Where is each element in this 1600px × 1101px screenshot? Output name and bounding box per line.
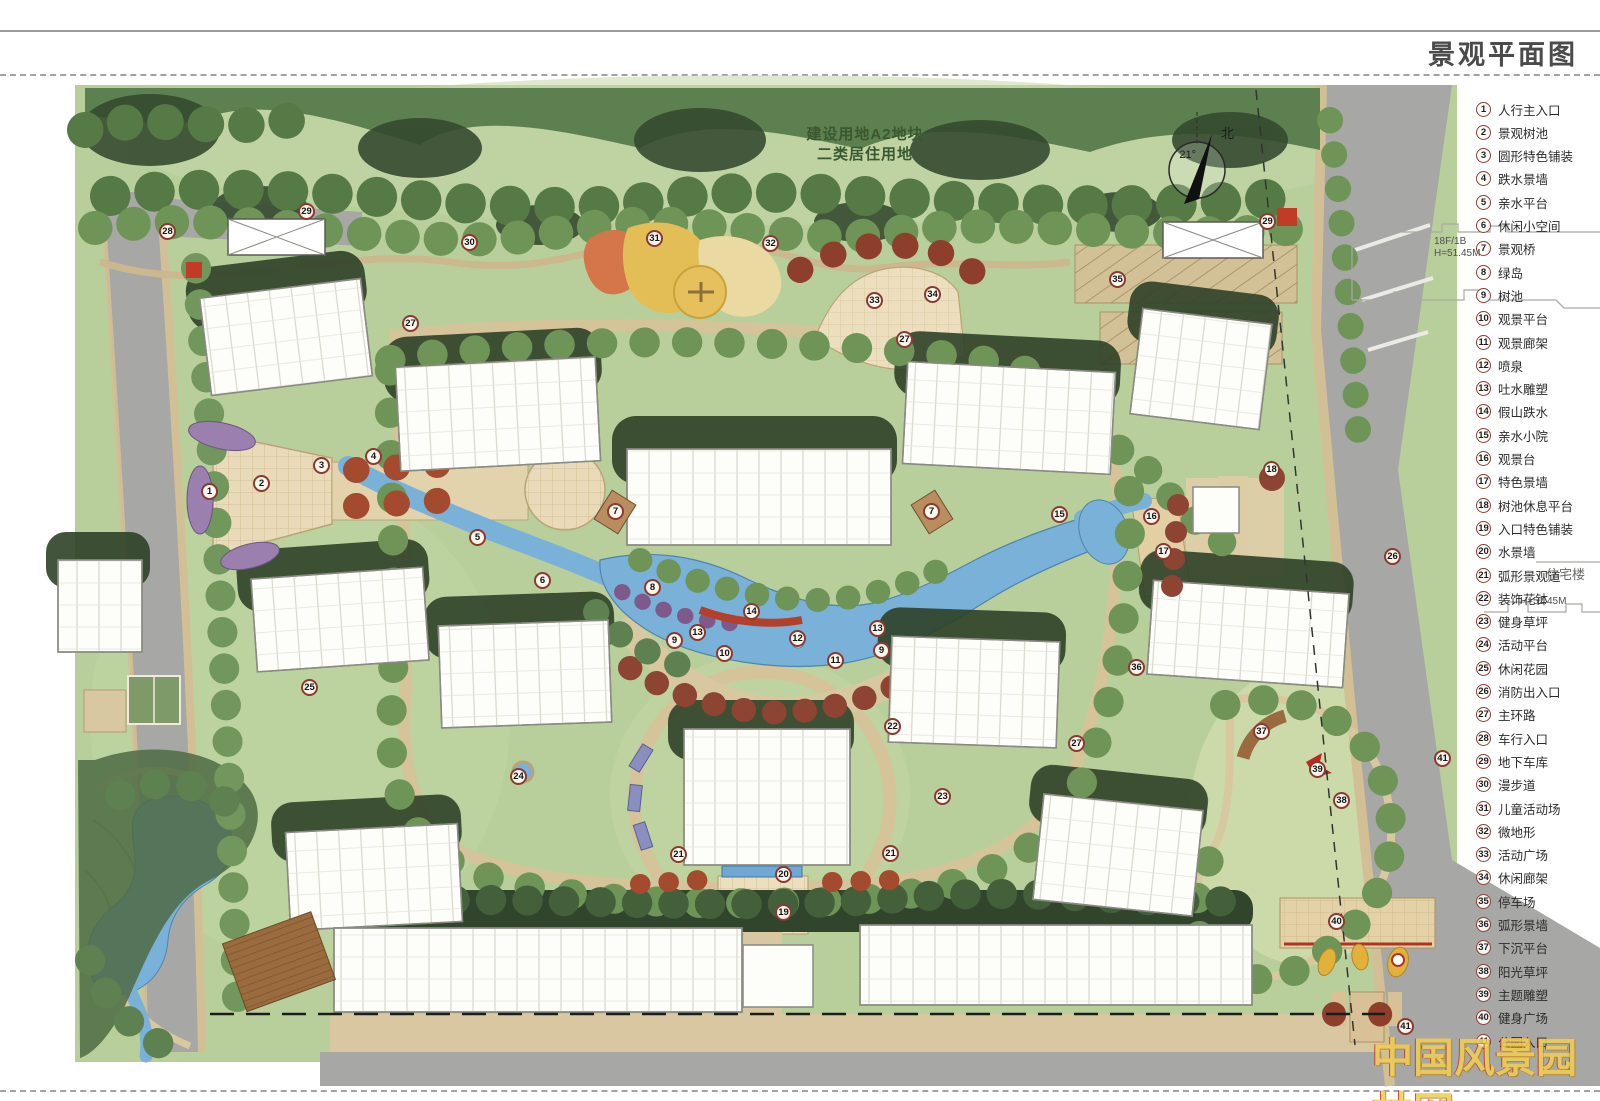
legend-item-label: 消防出入口: [1498, 682, 1561, 701]
legend-item-24: 24活动平台: [1476, 636, 1548, 654]
plan-marker-7: 7: [923, 503, 940, 520]
legend-item-label: 下沉平台: [1498, 938, 1548, 957]
plan-marker-34: 34: [924, 286, 941, 303]
legend-item-label: 活动广场: [1498, 845, 1548, 864]
legend-item-34: 34休闲廊架: [1476, 869, 1548, 887]
legend-item-number: 4: [1476, 171, 1491, 186]
plan-marker-27: 27: [1068, 735, 1085, 752]
legend-item-number: 2: [1476, 125, 1491, 140]
plan-marker-23: 23: [934, 788, 951, 805]
plan-marker-21: 21: [882, 845, 899, 862]
plan-marker-9: 9: [873, 642, 890, 659]
legend-item-number: 27: [1476, 707, 1491, 722]
legend-item-17: 17特色景墙: [1476, 473, 1548, 491]
legend-item-number: 6: [1476, 218, 1491, 233]
legend-item-label: 观景廊架: [1498, 333, 1548, 352]
plan-marker-7: 7: [607, 503, 624, 520]
legend-item-label: 休闲花园: [1498, 659, 1548, 678]
plan-marker-29: 29: [298, 203, 315, 220]
legend-item-30: 30漫步道: [1476, 776, 1536, 794]
legend-item-number: 13: [1476, 381, 1491, 396]
plan-marker-35: 35: [1109, 271, 1126, 288]
site-plan-drawing: 北 21°: [0, 0, 1600, 1101]
legend-item-number: 33: [1476, 847, 1491, 862]
north-angle: 21°: [1179, 149, 1196, 161]
legend-item-number: 38: [1476, 964, 1491, 979]
plan-marker-15: 15: [1051, 506, 1068, 523]
legend-item-23: 23健身草坪: [1476, 613, 1548, 631]
plan-marker-39: 39: [1309, 761, 1326, 778]
legend-item-37: 37下沉平台: [1476, 939, 1548, 957]
plan-marker-27: 27: [402, 315, 419, 332]
legend-item-number: 1: [1476, 102, 1491, 117]
legend-item-28: 28车行入口: [1476, 729, 1548, 747]
plan-marker-41: 41: [1397, 1018, 1414, 1035]
plan-marker-14: 14: [743, 603, 760, 620]
plan-marker-3: 3: [313, 457, 330, 474]
legend-item-number: 37: [1476, 940, 1491, 955]
legend-item-15: 15亲水小院: [1476, 426, 1548, 444]
legend-item-27: 27主环路: [1476, 706, 1536, 724]
landscape-plan-sheet: 景观平面图: [0, 0, 1600, 1101]
legend-item-10: 10观景平台: [1476, 310, 1548, 328]
plan-marker-1: 1: [201, 483, 218, 500]
plan-marker-21: 21: [670, 846, 687, 863]
legend-item-label: 漫步道: [1498, 775, 1536, 794]
building-note-mid-name: 住宅楼: [1546, 564, 1585, 583]
site-use-label: 建设用地A2地块 二类居住用地: [770, 125, 960, 165]
legend-item-number: 15: [1476, 428, 1491, 443]
legend-item-40: 40健身广场: [1476, 1009, 1548, 1027]
legend-item-label: 假山跌水: [1498, 402, 1548, 421]
legend-item-25: 25休闲花园: [1476, 659, 1548, 677]
watermark: 中国风景园林网 chla.com.cn: [1372, 1036, 1600, 1101]
legend-item-5: 5亲水平台: [1476, 193, 1548, 211]
plan-marker-19: 19: [775, 904, 792, 921]
plan-marker-18: 18: [1263, 461, 1280, 478]
legend-item-19: 19入口特色铺装: [1476, 519, 1573, 537]
legend-item-label: 树池: [1498, 286, 1523, 305]
legend-item-26: 26消防出入口: [1476, 683, 1561, 701]
legend-item-label: 喷泉: [1498, 356, 1523, 375]
plan-marker-41: 41: [1434, 750, 1451, 767]
legend-item-label: 吐水雕塑: [1498, 379, 1548, 398]
legend-item-number: 12: [1476, 358, 1491, 373]
legend-item-number: 24: [1476, 637, 1491, 652]
garage-ramp-west: [228, 219, 325, 255]
legend-item-number: 14: [1476, 404, 1491, 419]
legend-item-number: 26: [1476, 684, 1491, 699]
plan-marker-37: 37: [1253, 723, 1270, 740]
legend-item-number: 35: [1476, 894, 1491, 909]
legend-item-label: 阳光草坪: [1498, 962, 1548, 981]
plan-marker-36: 36: [1128, 659, 1145, 676]
plan-marker-5: 5: [469, 529, 486, 546]
plan-marker-13: 13: [689, 624, 706, 641]
plan-marker-31: 31: [646, 230, 663, 247]
legend-item-38: 38阳光草坪: [1476, 962, 1548, 980]
legend-item-11: 11观景廊架: [1476, 333, 1548, 351]
plan-marker-33: 33: [866, 292, 883, 309]
plan-marker-11: 11: [827, 652, 844, 669]
legend-item-2: 2景观树池: [1476, 123, 1548, 141]
site-use-line1: 建设用地A2地块: [770, 125, 960, 145]
legend-item-16: 16观景台: [1476, 450, 1536, 468]
building-note-top: 18F/1B H=51.45M: [1434, 236, 1480, 259]
legend-item-13: 13吐水雕塑: [1476, 380, 1548, 398]
legend-item-label: 地下车库: [1498, 752, 1548, 771]
legend-item-number: 21: [1476, 568, 1491, 583]
legend-item-number: 17: [1476, 474, 1491, 489]
legend-item-label: 弧形景墙: [1498, 915, 1548, 934]
legend-item-number: 28: [1476, 731, 1491, 746]
legend-item-36: 36弧形景墙: [1476, 916, 1548, 934]
legend-item-33: 33活动广场: [1476, 846, 1548, 864]
legend-item-number: 20: [1476, 544, 1491, 559]
legend-item-label: 儿童活动场: [1498, 799, 1561, 818]
plan-marker-26: 26: [1384, 548, 1401, 565]
legend-item-number: 19: [1476, 521, 1491, 536]
plan-marker-30: 30: [461, 234, 478, 251]
legend-item-31: 31儿童活动场: [1476, 799, 1561, 817]
plan-marker-2: 2: [253, 475, 270, 492]
legend-item-label: 水景墙: [1498, 542, 1536, 561]
legend-item-number: 16: [1476, 451, 1491, 466]
building-note-mid-height: H=51.45M: [1520, 596, 1566, 608]
legend-item-label: 活动平台: [1498, 635, 1548, 654]
legend-item-label: 健身草坪: [1498, 612, 1548, 631]
legend-item-number: 3: [1476, 148, 1491, 163]
plan-marker-16: 16: [1143, 508, 1160, 525]
legend-item-4: 4跌水景墙: [1476, 170, 1548, 188]
plan-marker-10: 10: [716, 645, 733, 662]
legend-item-number: 40: [1476, 1010, 1491, 1025]
legend-item-label: 树池休息平台: [1498, 496, 1573, 515]
legend-item-label: 主题雕塑: [1498, 985, 1548, 1004]
legend-item-number: 11: [1476, 335, 1491, 350]
legend-item-number: 5: [1476, 195, 1491, 210]
legend-item-1: 1人行主入口: [1476, 100, 1561, 118]
legend-item-number: 25: [1476, 661, 1491, 676]
legend-item-18: 18树池休息平台: [1476, 496, 1573, 514]
plan-marker-25: 25: [301, 679, 318, 696]
watermark-text: 中国风景园林网: [1372, 1035, 1577, 1101]
legend-item-8: 8绿岛: [1476, 263, 1523, 281]
legend-item-6: 6休闲小空间: [1476, 217, 1561, 235]
legend-item-label: 休闲小空间: [1498, 216, 1561, 235]
legend-item-label: 景观树池: [1498, 123, 1548, 142]
legend-item-label: 跌水景墙: [1498, 169, 1548, 188]
legend-item-32: 32微地形: [1476, 822, 1536, 840]
legend-item-number: 8: [1476, 265, 1491, 280]
site-use-line2: 二类居住用地: [770, 145, 960, 165]
plan-marker-32: 32: [762, 235, 779, 252]
plan-marker-22: 22: [884, 718, 901, 735]
plan-marker-38: 38: [1333, 792, 1350, 809]
plan-marker-27: 27: [896, 331, 913, 348]
legend-item-14: 14假山跌水: [1476, 403, 1548, 421]
legend-item-label: 车行入口: [1498, 729, 1548, 748]
legend-item-number: 39: [1476, 987, 1491, 1002]
legend-item-label: 观景平台: [1498, 309, 1548, 328]
legend-item-9: 9树池: [1476, 286, 1523, 304]
legend-item-number: 31: [1476, 801, 1491, 816]
legend-item-label: 亲水小院: [1498, 426, 1548, 445]
legend-item-number: 22: [1476, 591, 1491, 606]
legend-item-label: 亲水平台: [1498, 193, 1548, 212]
legend-item-label: 健身广场: [1498, 1008, 1548, 1027]
legend-item-number: 32: [1476, 824, 1491, 839]
plan-marker-4: 4: [365, 448, 382, 465]
plan-marker-9: 9: [666, 632, 683, 649]
legend-item-39: 39主题雕塑: [1476, 985, 1548, 1003]
legend-item-29: 29地下车库: [1476, 752, 1548, 770]
legend-item-number: 23: [1476, 614, 1491, 629]
legend-item-3: 3圆形特色铺装: [1476, 147, 1573, 165]
plan-marker-8: 8: [644, 579, 661, 596]
legend-item-label: 绿岛: [1498, 263, 1523, 282]
legend-item-label: 圆形特色铺装: [1498, 146, 1573, 165]
legend-item-label: 停车场: [1498, 892, 1536, 911]
legend-item-label: 景观桥: [1498, 239, 1536, 258]
legend-item-number: 30: [1476, 777, 1491, 792]
plan-marker-24: 24: [510, 768, 527, 785]
legend-item-label: 入口特色铺装: [1498, 519, 1573, 538]
plan-marker-40: 40: [1328, 913, 1345, 930]
legend-item-20: 20水景墙: [1476, 543, 1536, 561]
legend-item-label: 微地形: [1498, 822, 1536, 841]
garage-ramp-east: [1163, 222, 1263, 258]
plan-marker-29: 29: [1259, 213, 1276, 230]
legend-item-label: 休闲廊架: [1498, 868, 1548, 887]
plan-marker-13: 13: [869, 620, 886, 637]
plan-marker-28: 28: [159, 223, 176, 240]
legend-item-label: 人行主入口: [1498, 100, 1561, 119]
plan-marker-6: 6: [534, 572, 551, 589]
legend-item-number: 36: [1476, 917, 1491, 932]
legend-item-12: 12喷泉: [1476, 356, 1523, 374]
legend-item-number: 29: [1476, 754, 1491, 769]
legend-item-label: 主环路: [1498, 705, 1536, 724]
plan-marker-20: 20: [775, 866, 792, 883]
legend-item-35: 35停车场: [1476, 892, 1536, 910]
plan-marker-17: 17: [1155, 543, 1172, 560]
north-label: 北: [1221, 126, 1234, 141]
legend-item-label: 特色景墙: [1498, 472, 1548, 491]
legend-item-number: 18: [1476, 498, 1491, 513]
legend-item-number: 10: [1476, 311, 1491, 326]
legend-item-number: 9: [1476, 288, 1491, 303]
legend-item-number: 34: [1476, 870, 1491, 885]
legend-item-7: 7景观桥: [1476, 240, 1536, 258]
legend-item-label: 观景台: [1498, 449, 1536, 468]
plan-marker-12: 12: [789, 630, 806, 647]
